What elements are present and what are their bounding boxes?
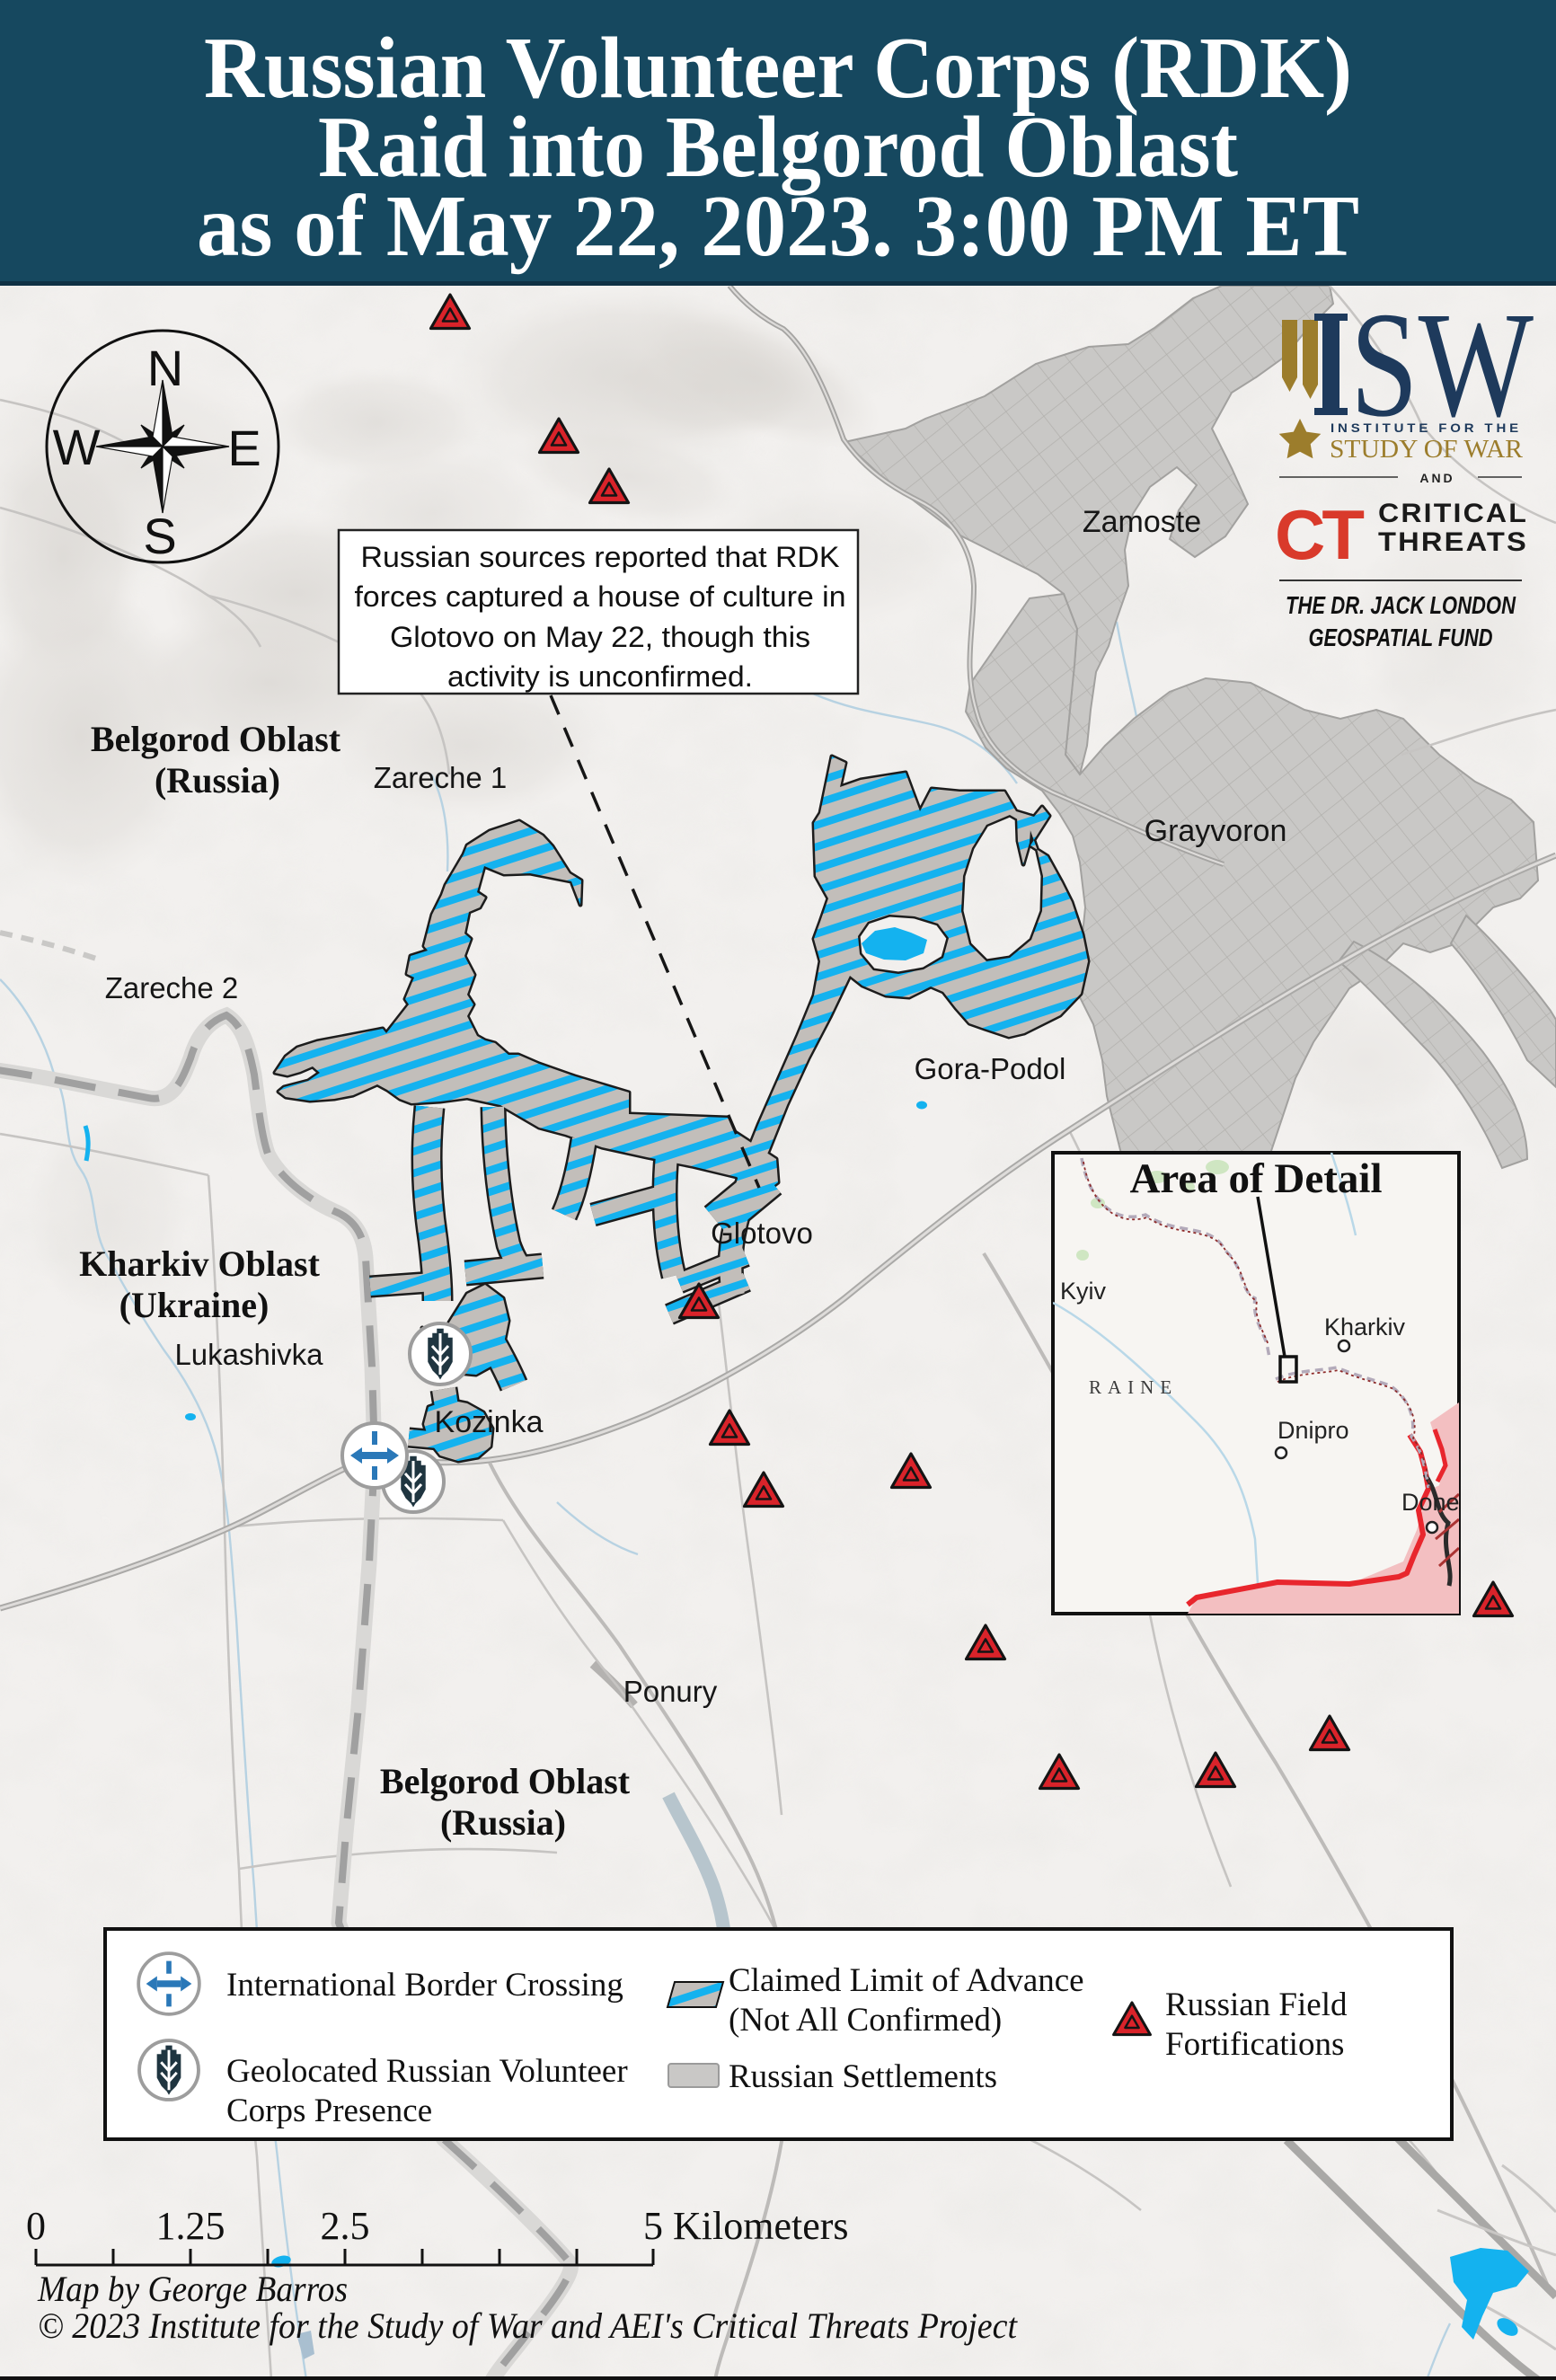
svg-text:Glotovo: Glotovo <box>711 1217 813 1250</box>
svg-text:Geolocated Russian Volunteer: Geolocated Russian Volunteer <box>226 2053 628 2090</box>
svg-text:(Russia): (Russia) <box>440 1802 566 1843</box>
svg-text:Belgorod Oblast: Belgorod Oblast <box>91 719 341 759</box>
svg-text:Area of Detail: Area of Detail <box>1129 1155 1382 1202</box>
svg-text:STUDY OF WAR: STUDY OF WAR <box>1330 435 1524 464</box>
svg-text:GEOSPATIAL FUND: GEOSPATIAL FUND <box>1309 624 1493 651</box>
svg-text:Zareche 2: Zareche 2 <box>105 971 239 1004</box>
svg-text:E: E <box>227 420 261 476</box>
svg-text:5: 5 <box>643 2204 663 2248</box>
svg-text:THE DR. JACK LONDON: THE DR. JACK LONDON <box>1286 591 1516 619</box>
svg-text:Grayvoron: Grayvoron <box>1145 814 1287 848</box>
svg-text:Corps Presence: Corps Presence <box>226 2092 432 2129</box>
svg-text:THREATS: THREATS <box>1378 527 1528 557</box>
svg-text:Claimed Limit of Advance: Claimed Limit of Advance <box>729 1962 1084 1999</box>
svg-text:Map by George Barros: Map by George Barros <box>37 2269 348 2309</box>
svg-text:AND: AND <box>1419 471 1454 485</box>
svg-text:RAINE: RAINE <box>1089 1376 1178 1398</box>
svg-text:Zamoste: Zamoste <box>1083 505 1201 539</box>
svg-text:activity is unconfirmed.: activity is unconfirmed. <box>447 660 753 693</box>
svg-text:CRITICAL: CRITICAL <box>1378 499 1528 528</box>
svg-text:W: W <box>53 419 101 475</box>
svg-text:as of May 22, 2023. 3:00 PM ET: as of May 22, 2023. 3:00 PM ET <box>197 178 1359 274</box>
svg-text:INSTITUTE FOR THE: INSTITUTE FOR THE <box>1331 420 1522 435</box>
svg-text:0: 0 <box>26 2204 46 2248</box>
svg-text:1.25: 1.25 <box>156 2204 225 2248</box>
svg-text:Gora-Podol: Gora-Podol <box>915 1052 1066 1085</box>
svg-text:Done: Done <box>1401 1489 1460 1516</box>
svg-text:(Russia): (Russia) <box>155 760 280 801</box>
svg-text:Fortifications: Fortifications <box>1165 2026 1344 2063</box>
svg-text:Lukashivka: Lukashivka <box>174 1338 323 1371</box>
svg-text:Russian Settlements: Russian Settlements <box>729 2058 997 2095</box>
svg-text:(Not All Confirmed): (Not All Confirmed) <box>729 2002 1002 2039</box>
svg-text:Kyiv: Kyiv <box>1060 1278 1107 1305</box>
svg-text:Russian sources reported that: Russian sources reported that RDK <box>361 541 840 573</box>
svg-text:N: N <box>147 340 183 396</box>
svg-text:Kharkiv Oblast: Kharkiv Oblast <box>79 1243 321 1284</box>
svg-text:Glotovo on May 22, though this: Glotovo on May 22, though this <box>390 621 810 653</box>
svg-text:CT: CT <box>1275 495 1364 574</box>
svg-text:Kozinka: Kozinka <box>435 1405 544 1439</box>
svg-text:Belgorod Oblast: Belgorod Oblast <box>380 1761 631 1801</box>
svg-text:Ponury: Ponury <box>623 1675 718 1708</box>
svg-text:International Border Crossing: International Border Crossing <box>226 1967 623 2004</box>
svg-text:(Ukraine): (Ukraine) <box>119 1285 270 1325</box>
svg-text:forces captured a house of cul: forces captured a house of culture in <box>355 580 846 613</box>
svg-text:Zareche 1: Zareche 1 <box>374 761 508 794</box>
svg-text:S: S <box>143 508 176 564</box>
svg-text:© 2023 Institute for the Study: © 2023 Institute for the Study of War an… <box>38 2305 1018 2346</box>
svg-text:Kharkiv: Kharkiv <box>1324 1314 1406 1340</box>
svg-text:Russian Field: Russian Field <box>1165 1986 1348 2023</box>
svg-text:Dnipro: Dnipro <box>1278 1417 1349 1444</box>
svg-text:Kilometers: Kilometers <box>673 2204 849 2248</box>
svg-text:2.5: 2.5 <box>321 2204 370 2248</box>
